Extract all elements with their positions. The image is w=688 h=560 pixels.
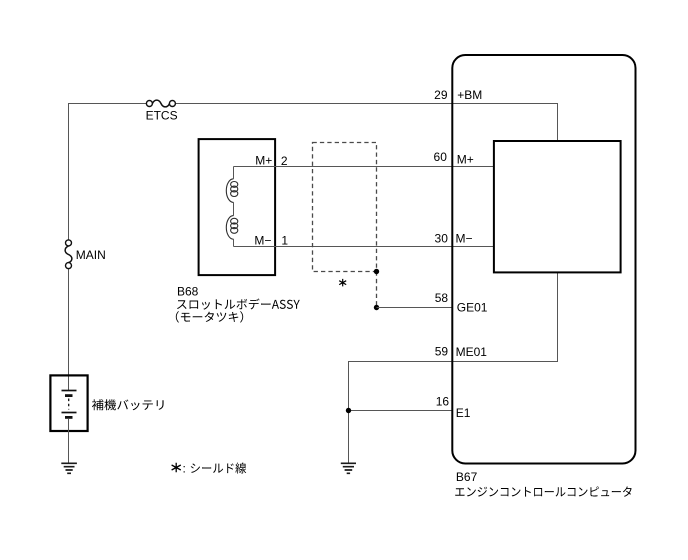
svg-text:2: 2 <box>281 154 288 168</box>
svg-text:30: 30 <box>435 232 449 246</box>
svg-text:B68: B68 <box>177 284 199 298</box>
svg-text:M−: M− <box>254 233 271 247</box>
svg-text:60: 60 <box>434 150 448 164</box>
svg-text:E1: E1 <box>456 406 471 420</box>
svg-text:B67: B67 <box>456 470 478 484</box>
svg-text:M−: M− <box>456 231 473 245</box>
svg-text:MAIN: MAIN <box>76 248 106 262</box>
svg-text:1: 1 <box>281 234 288 248</box>
svg-text:16: 16 <box>436 395 450 409</box>
svg-text:58: 58 <box>435 291 449 305</box>
svg-text:M+: M+ <box>255 153 272 167</box>
svg-text:59: 59 <box>435 345 449 359</box>
svg-text:ME01: ME01 <box>456 345 488 359</box>
svg-text:GE01: GE01 <box>457 300 488 314</box>
svg-text:29: 29 <box>434 88 448 102</box>
svg-text:+BM: +BM <box>457 88 482 102</box>
svg-text:M+: M+ <box>457 152 474 166</box>
svg-text::: : <box>183 461 186 475</box>
svg-text:ETCS: ETCS <box>146 109 178 123</box>
